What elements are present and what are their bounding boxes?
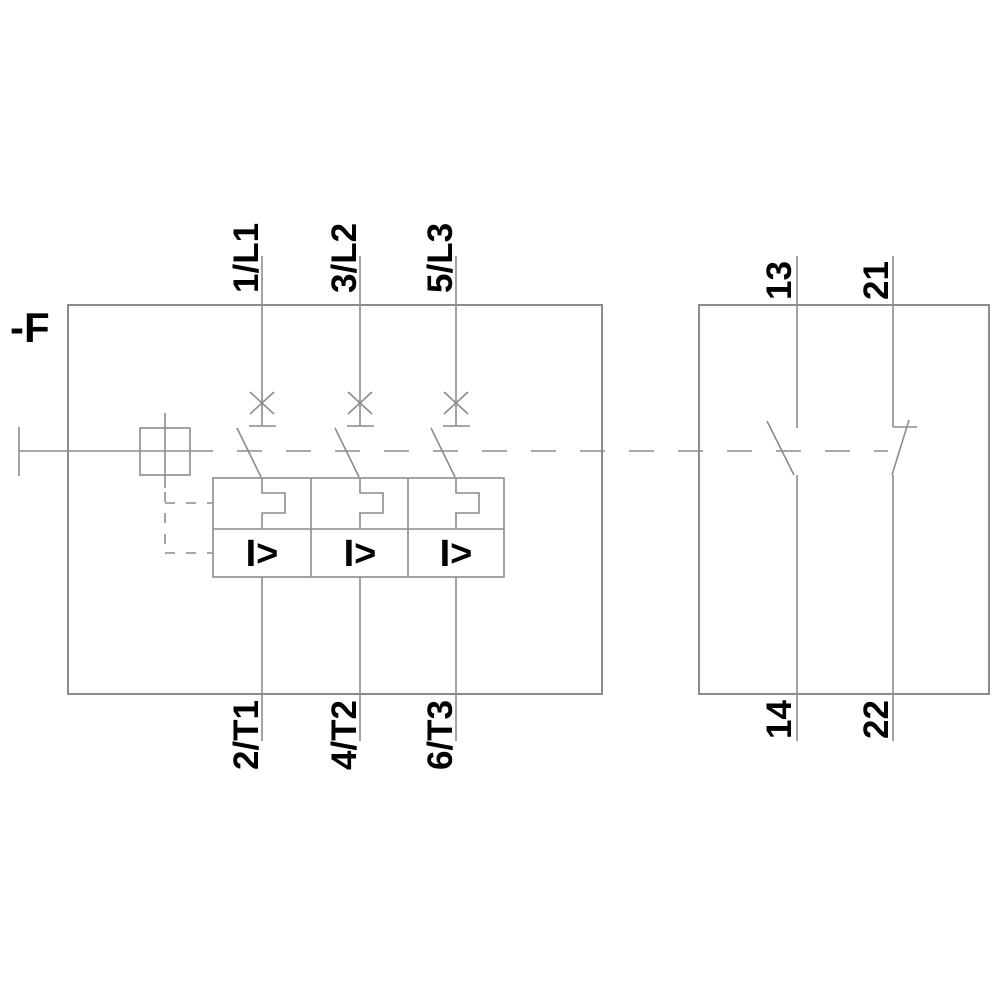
terminal-label-4t2: 4/T2 bbox=[325, 700, 364, 770]
contact-blade bbox=[335, 428, 359, 477]
aux-nc-contact-blade bbox=[892, 420, 909, 475]
operating-mechanism bbox=[140, 413, 213, 553]
terminal-label-5l3: 5/L3 bbox=[421, 223, 460, 293]
aux-no-contact: 13 14 bbox=[760, 256, 799, 741]
thermal-overload-release-icon bbox=[262, 478, 285, 529]
thermal-overload-release-icon bbox=[360, 478, 383, 529]
auxiliary-switch-enclosure bbox=[699, 305, 989, 694]
thermal-overload-release-icon bbox=[456, 478, 479, 529]
aux-no-contact-blade bbox=[767, 421, 794, 475]
circuit-diagram: -F I> 1/L1 2/T1 bbox=[0, 0, 1000, 1000]
device-reference-label: -F bbox=[10, 304, 50, 351]
terminal-label-14: 14 bbox=[760, 699, 799, 738]
contact-blade bbox=[237, 428, 261, 477]
magnetic-release-symbol: I> bbox=[344, 533, 377, 575]
contact-blade bbox=[431, 428, 455, 477]
terminal-label-2t1: 2/T1 bbox=[227, 700, 266, 770]
terminal-label-3l2: 3/L2 bbox=[325, 223, 364, 293]
schematic-canvas: -F I> 1/L1 2/T1 bbox=[0, 0, 1000, 1000]
terminal-label-1l1: 1/L1 bbox=[227, 223, 266, 293]
terminal-label-13: 13 bbox=[760, 261, 799, 300]
aux-nc-contact: 21 22 bbox=[857, 256, 917, 741]
magnetic-release-symbol: I> bbox=[440, 533, 473, 575]
magnetic-release-symbol: I> bbox=[246, 533, 279, 575]
manual-operator bbox=[19, 427, 213, 476]
terminal-label-22: 22 bbox=[857, 700, 896, 739]
terminal-label-21: 21 bbox=[857, 261, 896, 300]
main-breaker-enclosure bbox=[68, 305, 602, 694]
terminal-label-6t3: 6/T3 bbox=[421, 700, 460, 770]
